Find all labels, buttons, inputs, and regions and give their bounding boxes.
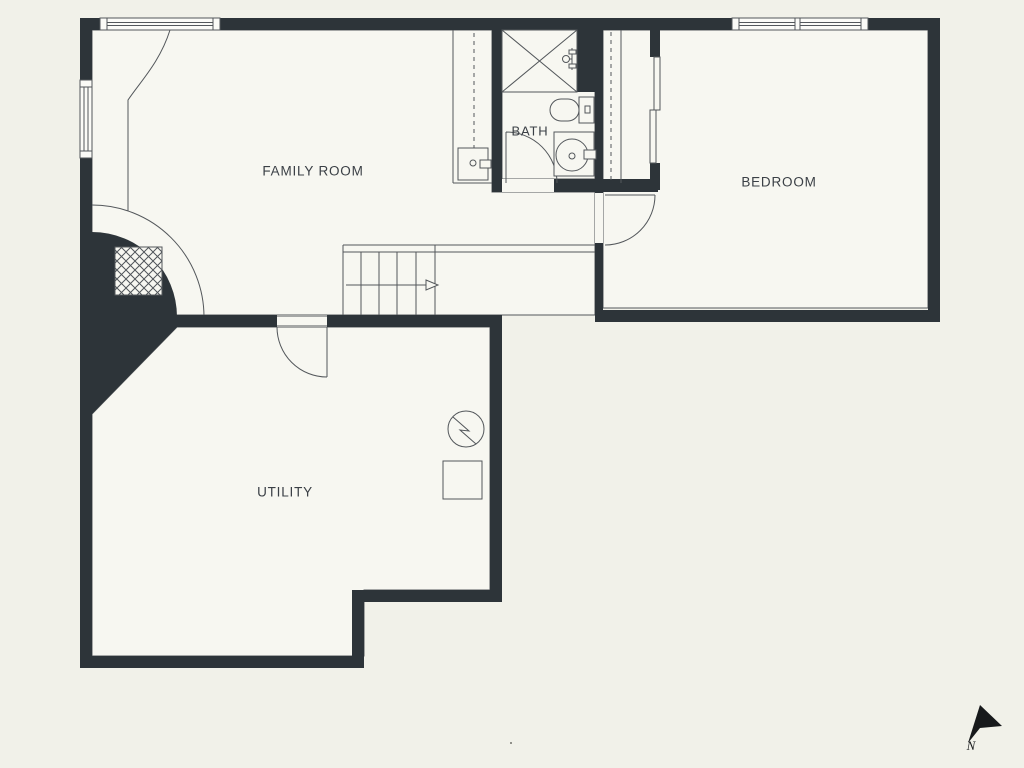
wall-closet-stub-top xyxy=(650,30,660,57)
bath-label: BATH xyxy=(512,124,549,139)
utility-label: UTILITY xyxy=(257,485,313,500)
bedroom-label: BEDROOM xyxy=(741,175,816,190)
electrical-panel-icon xyxy=(448,411,484,447)
wall-stair-bottom-left xyxy=(175,315,277,327)
wall-hall-bedroom-lower xyxy=(595,243,603,315)
wall-closet-stub-bottom xyxy=(650,163,660,190)
family-room-label: FAMILY ROOM xyxy=(262,164,363,179)
wall-right xyxy=(928,18,940,322)
wall-bedroom-bottom xyxy=(595,310,940,322)
sink xyxy=(554,132,596,176)
wall-top-1 xyxy=(80,18,100,30)
floor-plan-canvas: FAMILY ROOM BEDROOM BATH UTILITY N xyxy=(0,0,1024,768)
floor-areas xyxy=(92,30,928,656)
north-label: N xyxy=(967,738,976,754)
laundry-sink xyxy=(458,148,491,180)
wall-bath-bottom xyxy=(554,179,658,192)
wall-laundry-right xyxy=(492,30,502,192)
wall-left-lower xyxy=(80,158,92,668)
toilet xyxy=(550,97,594,123)
wall-left-upper xyxy=(80,30,92,80)
wall-stair-bottom-right xyxy=(327,315,490,327)
firebox-hatch xyxy=(115,247,162,295)
wall-hall-bedroom-upper xyxy=(595,183,603,193)
wall-bath-closet xyxy=(595,30,603,192)
bedroom-window xyxy=(732,18,868,30)
page-mark-dot xyxy=(510,742,512,744)
floor-plan-drawing xyxy=(0,0,1024,768)
family-room-window xyxy=(100,18,220,30)
wall-step-horizontal xyxy=(352,590,502,602)
wall-bottom xyxy=(80,656,364,668)
furnace-box xyxy=(443,461,482,499)
wall-utility-right xyxy=(490,315,502,602)
left-wall-window xyxy=(80,80,92,158)
wall-top-2 xyxy=(220,18,732,30)
